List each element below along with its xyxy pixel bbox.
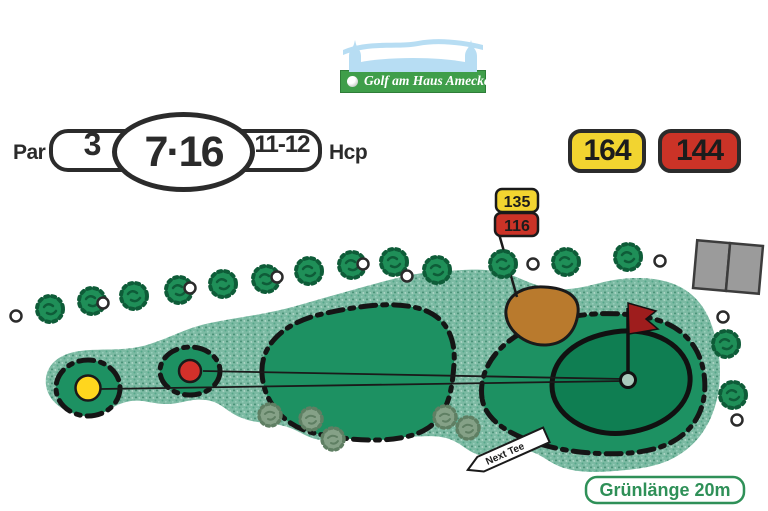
yellow-distance-badge: 164 (568, 129, 646, 173)
tree-icon (615, 244, 641, 270)
white-marker-icon (732, 415, 743, 426)
white-marker-icon (185, 283, 196, 294)
hole-marker (621, 373, 636, 388)
tree-icon (553, 249, 579, 275)
tree-icon (720, 382, 746, 408)
golf-ball-icon (347, 76, 358, 87)
yellow-tee-marker (76, 376, 101, 401)
tree-icon (490, 251, 516, 277)
bush-icon (259, 404, 281, 426)
building-icon (693, 240, 763, 294)
white-marker-icon (11, 311, 22, 322)
white-marker-icon (358, 259, 369, 270)
marker-distance-yellow: 135 (504, 194, 531, 211)
hole-numbers: 7·16 (144, 128, 222, 177)
tree-icon (210, 271, 236, 297)
green-length-label: Grünlänge 20m (599, 480, 730, 500)
bush-icon (434, 406, 456, 428)
hole-diagram-page: 135 116 (0, 0, 768, 511)
tree-icon (121, 283, 147, 309)
red-tee-marker (179, 360, 201, 382)
red-distance-badge: 144 (658, 129, 741, 173)
hole-number-ellipse: 7·16 (112, 112, 255, 192)
white-marker-icon (718, 312, 729, 323)
tree-icon (37, 296, 63, 322)
hcp-range: 11-12 (247, 131, 317, 159)
par-label: Par (13, 141, 45, 165)
bush-icon (457, 417, 479, 439)
tree-icon (424, 257, 450, 283)
white-marker-icon (655, 256, 666, 267)
bush-icon (322, 428, 344, 450)
tree-icon (296, 258, 322, 284)
bush-icon (300, 408, 322, 430)
marker-distance-red: 116 (504, 218, 530, 235)
tree-icon (713, 331, 739, 357)
white-marker-icon (528, 259, 539, 270)
club-logo: Golf am Haus Amecke (340, 34, 486, 93)
club-name: Golf am Haus Amecke (364, 73, 490, 89)
logo-banner: Golf am Haus Amecke (340, 70, 486, 93)
green-length-box: Grünlänge 20m (586, 477, 744, 503)
white-marker-icon (272, 272, 283, 283)
white-marker-icon (98, 298, 109, 309)
white-marker-icon (402, 271, 413, 282)
castle-icon (343, 34, 483, 72)
hcp-label: Hcp (329, 141, 367, 165)
